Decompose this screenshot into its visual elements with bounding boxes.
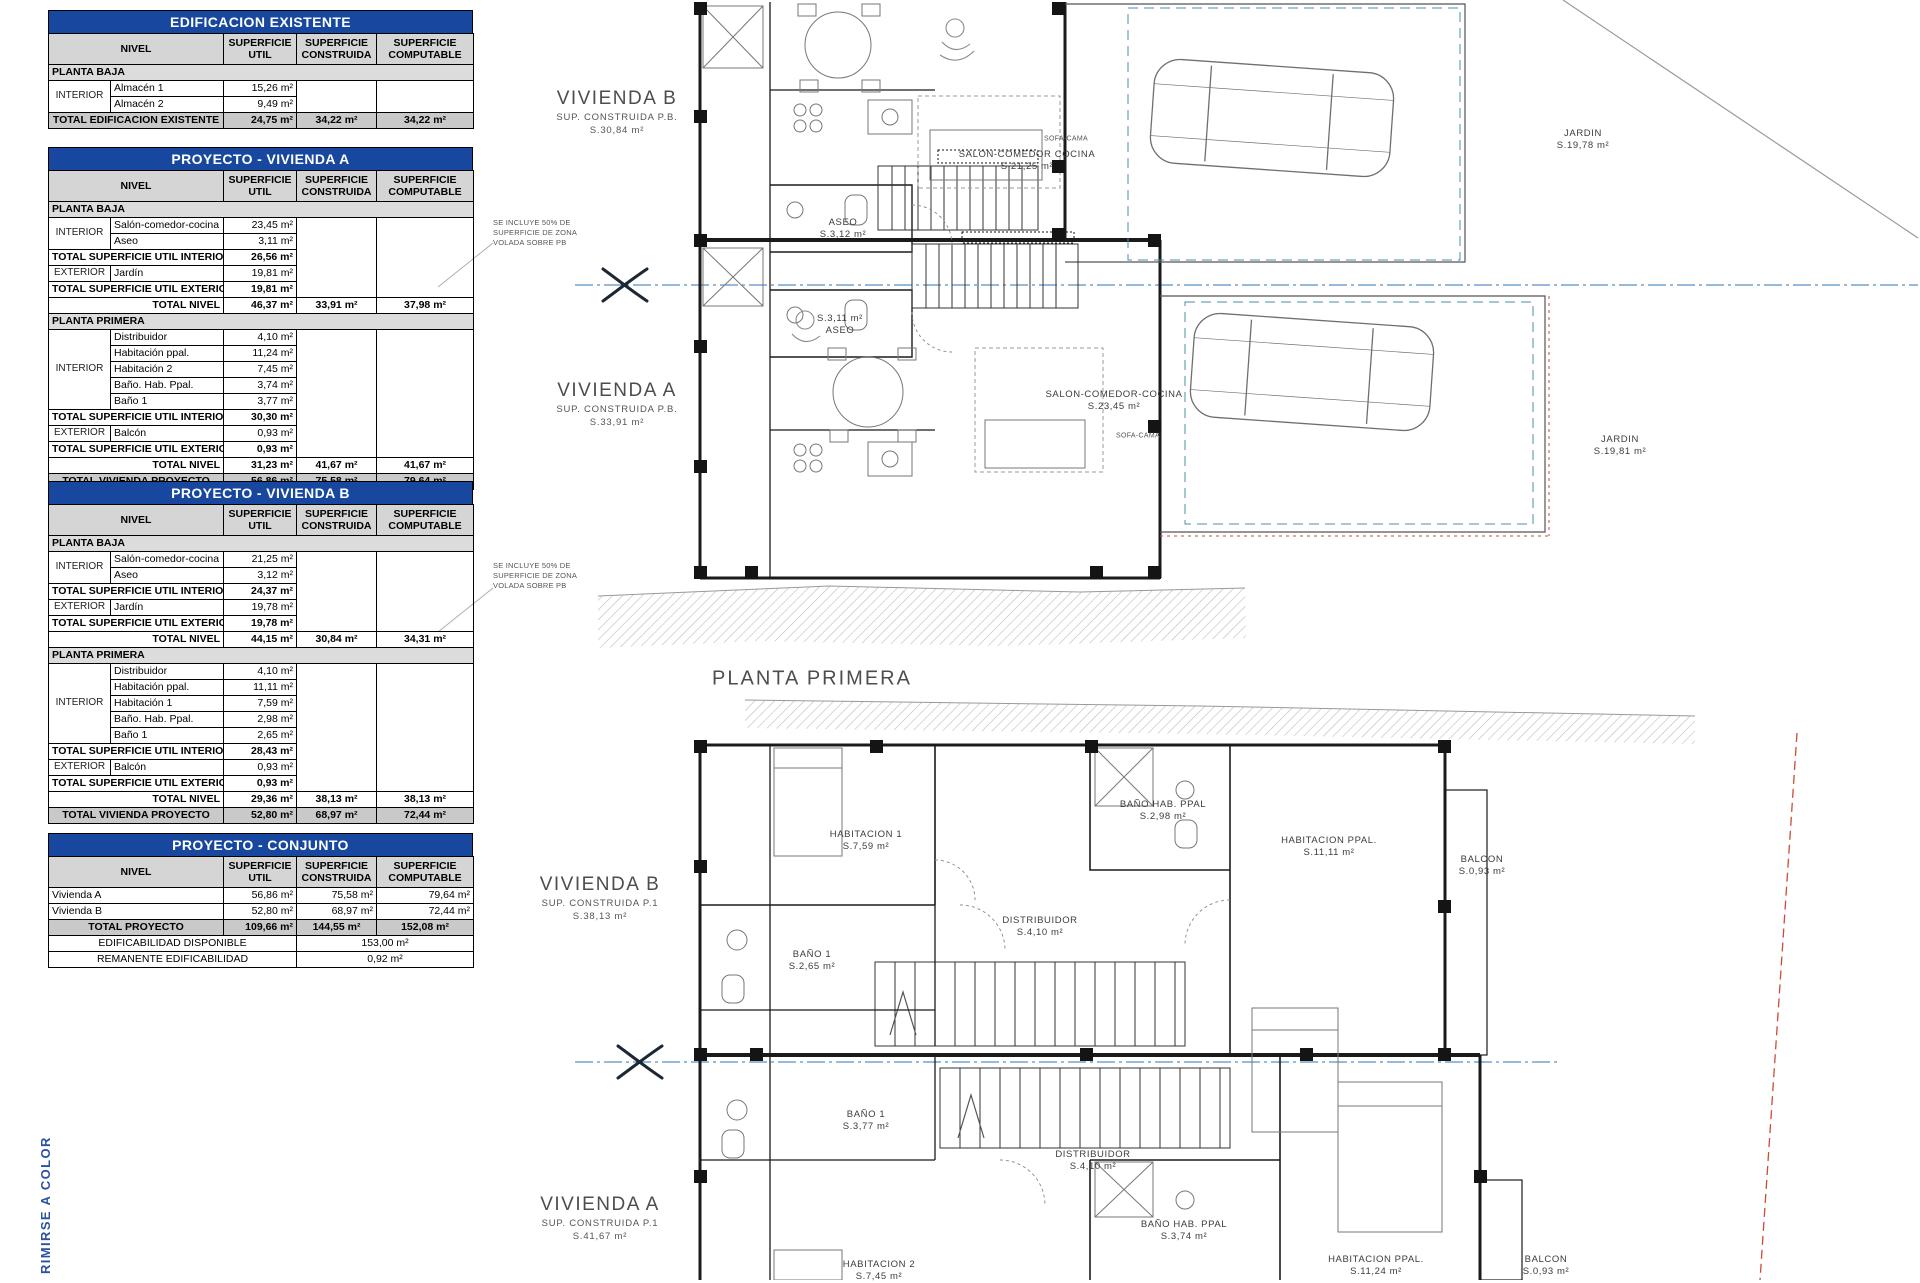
room-label-line: S.2,65 m² [789, 961, 836, 973]
room-label-line: ASEO [817, 325, 863, 337]
surface-note-line: SE INCLUYE 50% DE [493, 218, 577, 228]
surface-note-line: VOLADA SOBRE PB [493, 238, 577, 248]
room-label-line: PLANTA PRIMERA [712, 667, 912, 692]
surface-note-line: SUPERFICIE DE ZONA [493, 571, 577, 581]
dwelling-label: VIVIENDA BSUP. CONSTRUIDA P.1S.38,13 m² [540, 874, 661, 922]
room-label: JARDINS.19,81 m² [1594, 434, 1646, 458]
surface-note-line: VOLADA SOBRE PB [493, 581, 577, 591]
room-label-line: SALON-COMEDOR-COCINA [1045, 389, 1182, 401]
room-label-line: BALCON [1523, 1254, 1570, 1266]
room-label: DISTRIBUIDORS.4,10 m² [1055, 1149, 1130, 1173]
room-label: HABITACION 2S.7,45 m² [843, 1259, 915, 1283]
dwelling-name: VIVIENDA B [540, 874, 661, 896]
room-label: HABITACION PPAL.S.11,24 m² [1328, 1254, 1424, 1278]
room-label: BAÑO HAB. PPALS.2,98 m² [1120, 799, 1206, 823]
dwelling-sub-label: S.41,67 m² [540, 1231, 660, 1242]
room-label-line: JARDIN [1557, 128, 1609, 140]
room-label-line: HABITACION PPAL. [1328, 1254, 1424, 1266]
room-label-line: SOFA-CAMA [1116, 433, 1160, 442]
room-label: HABITACION PPAL.S.11,11 m² [1281, 835, 1377, 859]
dwelling-sub-label: SUP. CONSTRUIDA P.B. [556, 112, 677, 123]
plan-label-layer: VIVIENDA BSUP. CONSTRUIDA P.B.S.30,84 m²… [0, 0, 1920, 1280]
room-label-line: S.3,11 m² [817, 313, 863, 325]
dwelling-sub-label: S.30,84 m² [556, 125, 677, 136]
room-label: JARDINS.19,78 m² [1557, 128, 1609, 152]
room-label-line: S.7,45 m² [843, 1271, 915, 1283]
room-label: SALON-COMEDOR COCINAS.21,25 m² [959, 149, 1096, 173]
dwelling-label: VIVIENDA ASUP. CONSTRUIDA P.B.S.33,91 m² [556, 380, 677, 428]
dwelling-sub-label: S.38,13 m² [540, 911, 661, 922]
room-label-line: S.2,98 m² [1120, 811, 1206, 823]
room-label: ASEOS.3,12 m² [820, 217, 867, 241]
dwelling-label: VIVIENDA BSUP. CONSTRUIDA P.B.S.30,84 m² [556, 88, 677, 136]
surface-note-line: SUPERFICIE DE ZONA [493, 228, 577, 238]
room-label: SOFA-CAMA [1116, 433, 1160, 442]
room-label-line: S.19,81 m² [1594, 446, 1646, 458]
room-label: S.3,11 m²ASEO [817, 313, 863, 337]
room-label-line: JARDIN [1594, 434, 1646, 446]
dwelling-sub-label: SUP. CONSTRUIDA P.1 [540, 898, 661, 909]
room-label: BAÑO 1S.3,77 m² [843, 1109, 890, 1133]
room-label: DISTRIBUIDORS.4,10 m² [1002, 915, 1077, 939]
surface-note-line: SE INCLUYE 50% DE [493, 561, 577, 571]
room-label-line: S.3,77 m² [843, 1121, 890, 1133]
dwelling-sub-label: SUP. CONSTRUIDA P.B. [556, 404, 677, 415]
room-label: BALCONS.0,93 m² [1459, 854, 1506, 878]
room-label: BALCONS.0,93 m² [1523, 1254, 1570, 1278]
room-label-line: BAÑO HAB. PPAL [1120, 799, 1206, 811]
room-label: SOFA-CAMA [1044, 136, 1088, 145]
room-label-line: SOFA-CAMA [1044, 136, 1088, 145]
dwelling-name: VIVIENDA B [556, 88, 677, 110]
surface-note: SE INCLUYE 50% DESUPERFICIE DE ZONAVOLAD… [493, 561, 577, 590]
surface-note: SE INCLUYE 50% DESUPERFICIE DE ZONAVOLAD… [493, 218, 577, 247]
dwelling-label: VIVIENDA ASUP. CONSTRUIDA P.1S.41,67 m² [540, 1194, 660, 1242]
room-label: BAÑO HAB. PPALS.3,74 m² [1141, 1219, 1227, 1243]
room-label-line: S.23,45 m² [1045, 401, 1182, 413]
room-label-line: DISTRIBUIDOR [1055, 1149, 1130, 1161]
room-label-line: DISTRIBUIDOR [1002, 915, 1077, 927]
room-label-line: ASEO [820, 217, 867, 229]
dwelling-name: VIVIENDA A [556, 380, 677, 402]
room-label-line: S.0,93 m² [1459, 866, 1506, 878]
room-label-line: S.3,12 m² [820, 229, 867, 241]
room-label-line: S.4,10 m² [1002, 927, 1077, 939]
dwelling-name: VIVIENDA A [540, 1194, 660, 1216]
room-label-line: S.19,78 m² [1557, 140, 1609, 152]
room-label-line: S.11,11 m² [1281, 847, 1377, 859]
room-label-line: S.4,10 m² [1055, 1161, 1130, 1173]
dwelling-sub-label: S.33,91 m² [556, 417, 677, 428]
room-label-line: S.3,74 m² [1141, 1231, 1227, 1243]
room-label-line: BAÑO 1 [843, 1109, 890, 1121]
room-label-line: HABITACION 1 [830, 829, 902, 841]
room-label-line: BAÑO 1 [789, 949, 836, 961]
print-color-note: RIMIRSE A COLOR [38, 1136, 53, 1274]
room-label-line: HABITACION 2 [843, 1259, 915, 1271]
room-label-line: SALON-COMEDOR COCINA [959, 149, 1096, 161]
room-label: BAÑO 1S.2,65 m² [789, 949, 836, 973]
room-label-line: BALCON [1459, 854, 1506, 866]
room-label-line: S.11,24 m² [1328, 1266, 1424, 1278]
room-label: HABITACION 1S.7,59 m² [830, 829, 902, 853]
room-label-line: S.0,93 m² [1523, 1266, 1570, 1278]
room-label-line: HABITACION PPAL. [1281, 835, 1377, 847]
room-label-line: S.7,59 m² [830, 841, 902, 853]
room-label-line: S.21,25 m² [959, 161, 1096, 173]
room-label: SALON-COMEDOR-COCINAS.23,45 m² [1045, 389, 1182, 413]
dwelling-sub-label: SUP. CONSTRUIDA P.1 [540, 1218, 660, 1229]
room-label: PLANTA PRIMERA [712, 667, 912, 692]
room-label-line: BAÑO HAB. PPAL [1141, 1219, 1227, 1231]
